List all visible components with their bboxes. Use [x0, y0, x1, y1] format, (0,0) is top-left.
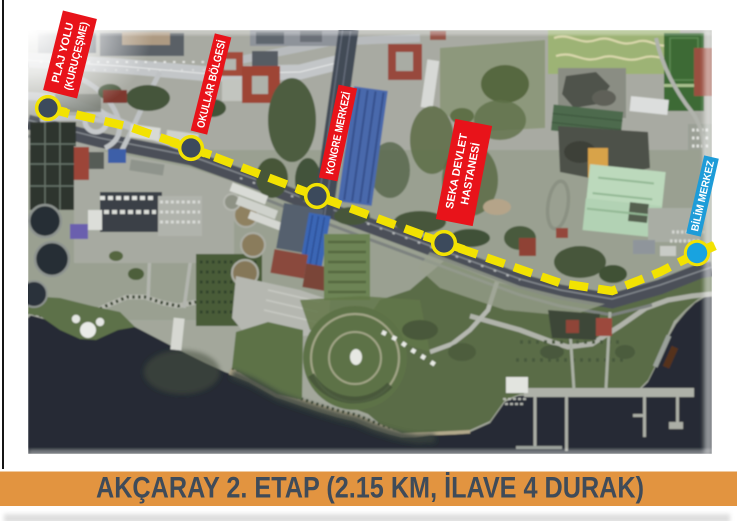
- svg-text:AKÇARAY 2. ETAP (2.15 KM, İLAV: AKÇARAY 2. ETAP (2.15 KM, İLAVE 4 DURAK): [96, 472, 644, 505]
